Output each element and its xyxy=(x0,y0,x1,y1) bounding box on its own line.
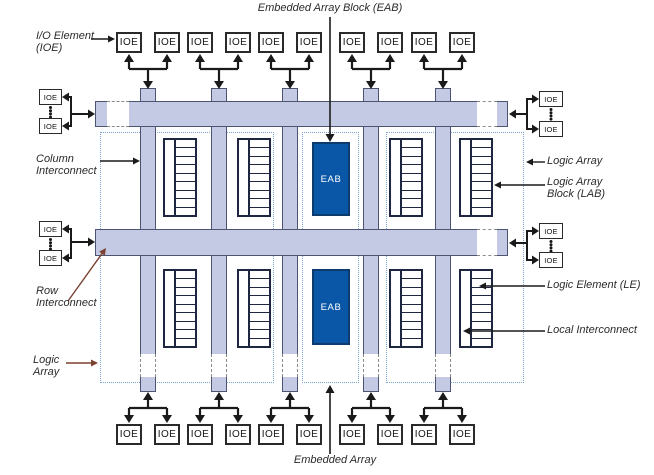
label-line: I/O Element xyxy=(36,30,94,42)
label-line: Logic xyxy=(33,354,59,366)
ioe-box: IOE xyxy=(296,424,322,445)
ioe-box-side: IOE xyxy=(539,223,563,239)
ioe-box-side: IOE xyxy=(39,89,62,105)
fpga-architecture-diagram: EABEAB IOEIOEIOEIOEIOEIOEIOEIOEIOEIOEIOE… xyxy=(0,0,654,475)
ioe-box: IOE xyxy=(411,424,437,445)
ioe-box: IOE xyxy=(296,32,322,53)
ioe-box: IOE xyxy=(449,424,475,445)
row-interconnect-label: Row Interconnect xyxy=(36,285,97,309)
ioe-box: IOE xyxy=(339,32,365,53)
embedded-array-caption: Embedded Array xyxy=(294,454,376,466)
ioe-box: IOE xyxy=(377,424,403,445)
ioe-box: IOE xyxy=(377,32,403,53)
label-line: (IOE) xyxy=(36,42,94,54)
local-interconnect-label: Local Interconnect xyxy=(547,324,637,336)
ioe-box-side: IOE xyxy=(39,250,62,266)
ioe-box: IOE xyxy=(225,424,251,445)
label-line: Logic Array xyxy=(547,176,605,188)
ioe-box: IOE xyxy=(116,32,142,53)
column-interconnect-label: Column Interconnect xyxy=(36,153,97,177)
ioe-box: IOE xyxy=(411,32,437,53)
ioe-box: IOE xyxy=(154,424,180,445)
ioe-box: IOE xyxy=(116,424,142,445)
ioe-box-side: IOE xyxy=(539,91,563,107)
embedded-array-block-caption: Embedded Array Block (EAB) xyxy=(258,2,402,14)
ioe-box: IOE xyxy=(339,424,365,445)
ioe-box: IOE xyxy=(187,424,213,445)
label-line: Column xyxy=(36,153,97,165)
label-line: Block (LAB) xyxy=(547,188,605,200)
ioe-box: IOE xyxy=(449,32,475,53)
ioe-box: IOE xyxy=(187,32,213,53)
ioe-box-side: IOE xyxy=(539,121,563,137)
io-element-label: I/O Element (IOE) xyxy=(36,30,94,54)
label-line: Interconnect xyxy=(36,165,97,177)
logic-array-right-label: Logic Array xyxy=(547,155,602,167)
label-line: Array xyxy=(33,366,59,378)
ioe-box: IOE xyxy=(225,32,251,53)
label-line: Row xyxy=(36,285,97,297)
logic-array-left-label: Logic Array xyxy=(33,354,59,378)
ioe-box-side: IOE xyxy=(39,118,62,134)
ioe-box-side: IOE xyxy=(39,221,62,237)
ioe-box-side: IOE xyxy=(539,252,563,268)
label-line: Interconnect xyxy=(36,297,97,309)
ioe-box: IOE xyxy=(258,424,284,445)
logic-element-label: Logic Element (LE) xyxy=(547,279,641,291)
ioe-box: IOE xyxy=(154,32,180,53)
ioe-box: IOE xyxy=(258,32,284,53)
logic-array-block-label: Logic Array Block (LAB) xyxy=(547,176,605,200)
ioe-boxes-layer: IOEIOEIOEIOEIOEIOEIOEIOEIOEIOEIOEIOEIOEI… xyxy=(0,0,654,475)
